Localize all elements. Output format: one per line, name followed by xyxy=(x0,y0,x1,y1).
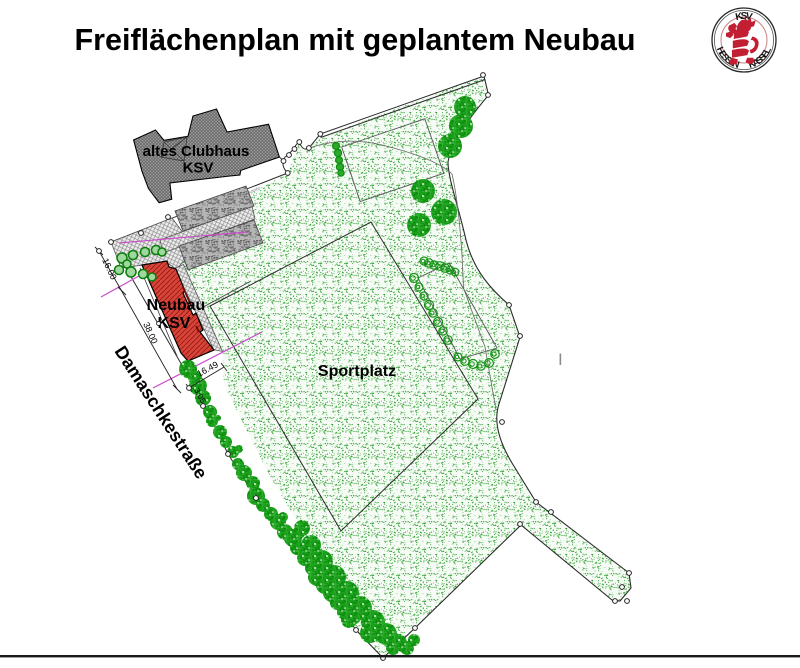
svg-text:KSV: KSV xyxy=(183,160,214,177)
svg-text:KSV: KSV xyxy=(158,315,191,332)
svg-text:Freiflächenplan mit geplantem: Freiflächenplan mit geplantem Neubau xyxy=(75,23,636,57)
svg-text:Neubau: Neubau xyxy=(147,297,206,314)
svg-text:altes Clubhaus: altes Clubhaus xyxy=(143,143,250,160)
svg-text:Sportplatz: Sportplatz xyxy=(318,363,396,380)
svg-text:I: I xyxy=(558,350,563,369)
